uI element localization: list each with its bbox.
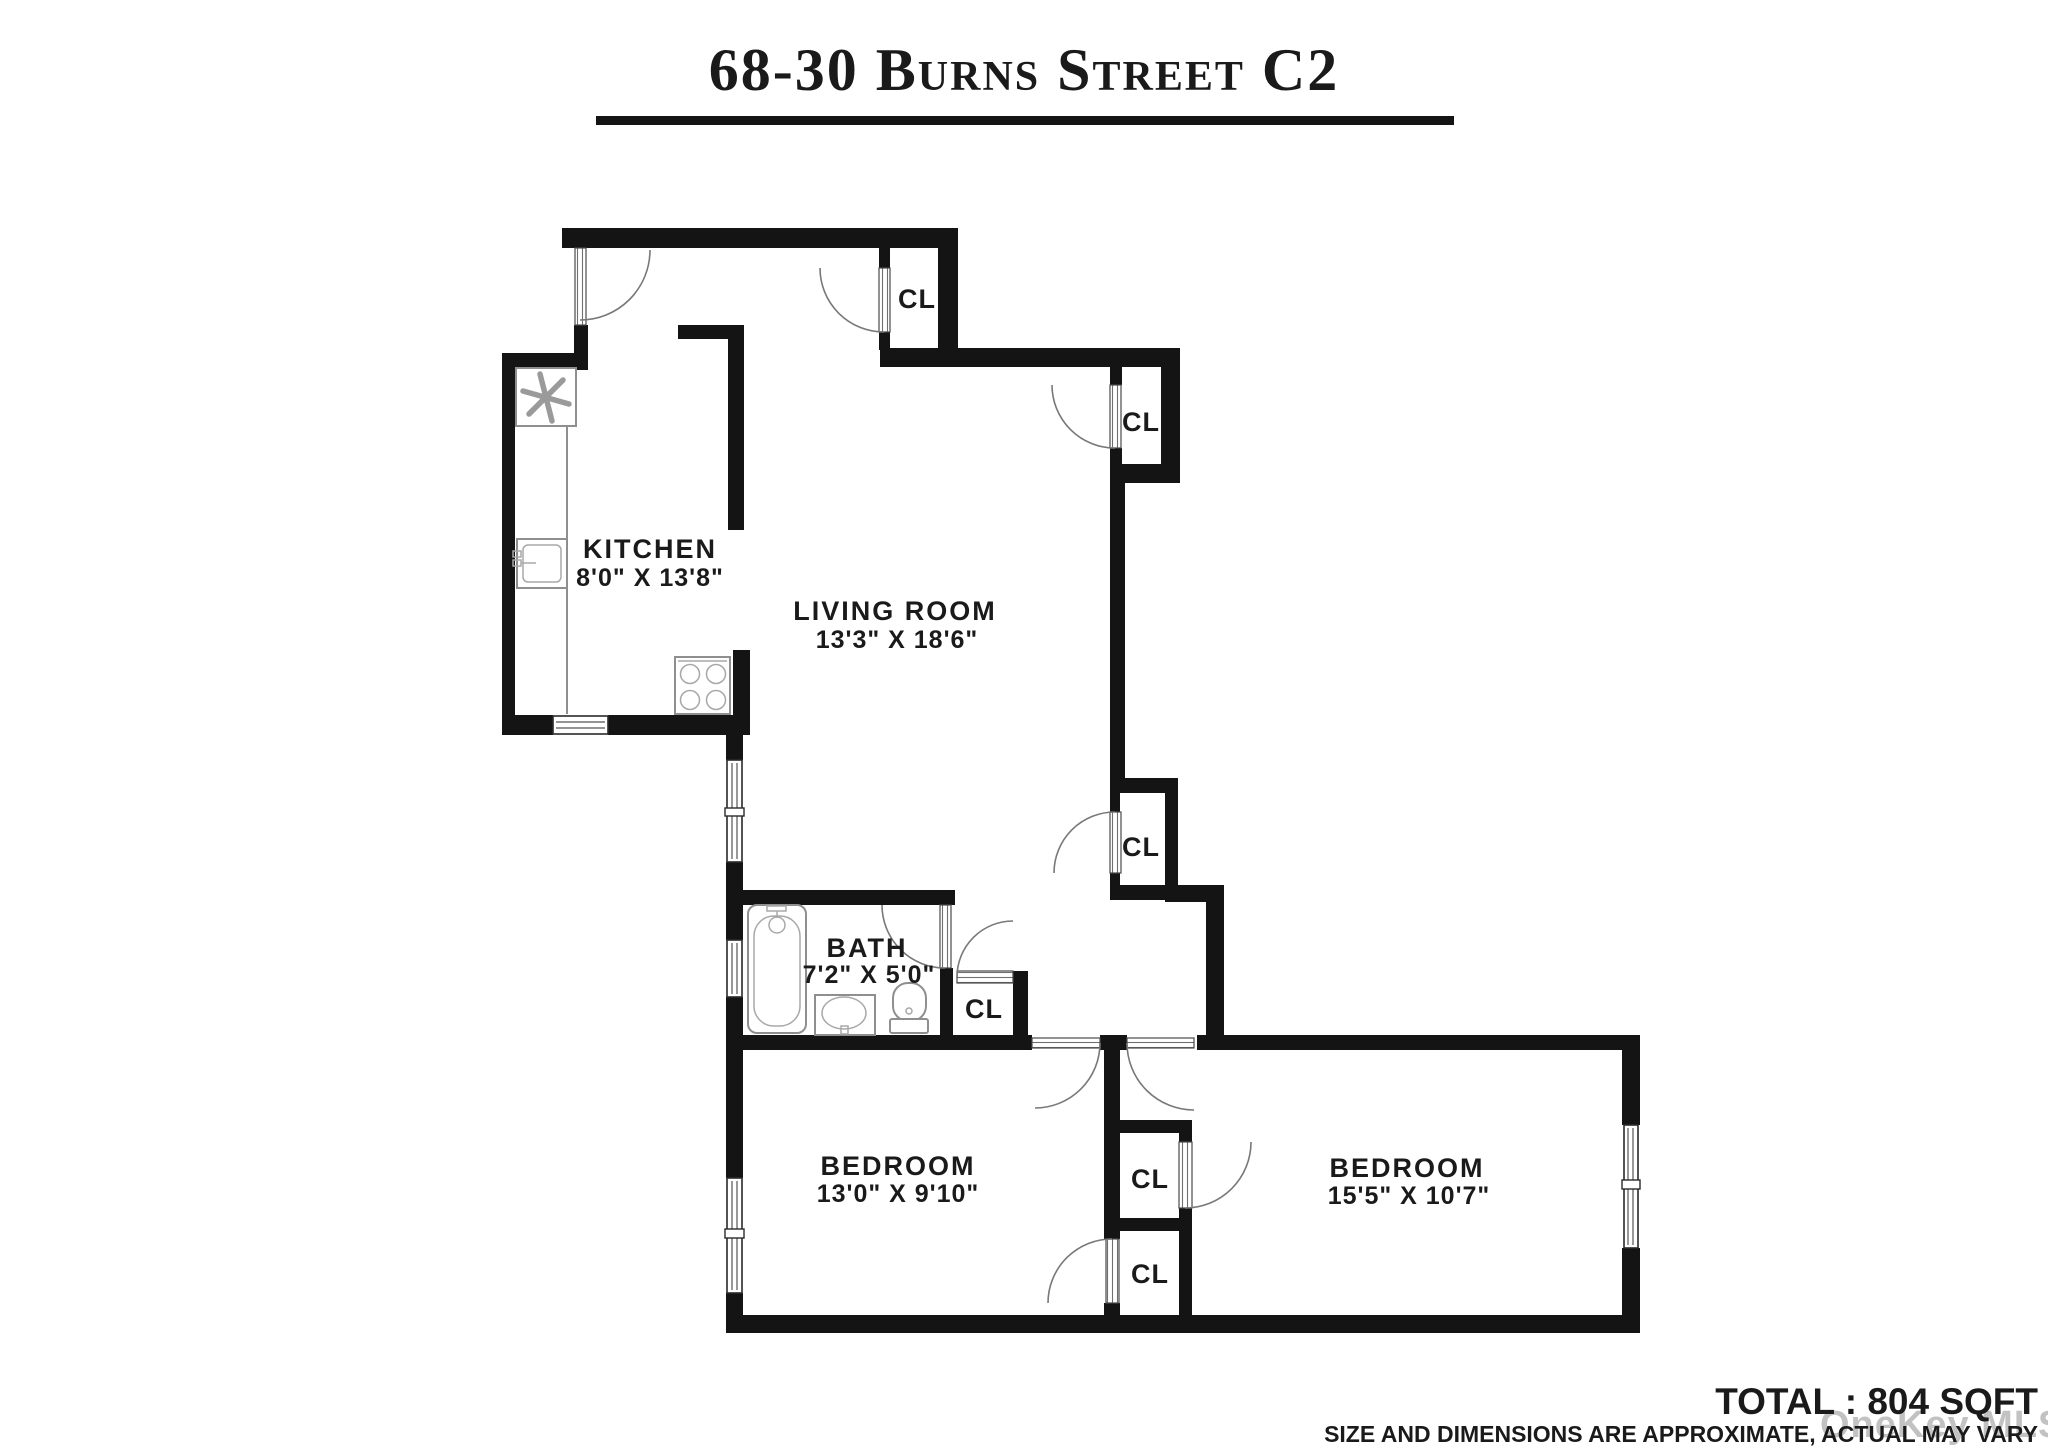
dining-window xyxy=(725,760,744,862)
closet3-label: CL xyxy=(1122,832,1160,862)
closet5-label: CL xyxy=(1131,1164,1169,1194)
closet2-label: CL xyxy=(1122,407,1160,437)
floor-plan-page: 68-30 Burns Street C2 xyxy=(0,0,2048,1448)
kitchen-window xyxy=(553,716,608,734)
stove-icon xyxy=(675,657,730,714)
page-title: 68-30 Burns Street C2 xyxy=(709,37,1339,103)
bath-sink-icon xyxy=(815,995,875,1035)
kitchen-sink-icon xyxy=(513,539,567,588)
refrigerator-icon xyxy=(516,368,576,426)
closet4-label: CL xyxy=(965,994,1003,1024)
bath-window xyxy=(727,940,742,997)
kitchen-dimensions: 8'0" X 13'8" xyxy=(576,564,724,592)
bath-label: BATH xyxy=(827,933,908,963)
bath-dimensions: 7'2" X 5'0" xyxy=(803,961,936,989)
bedroom1-dimensions: 13'0" X 9'10" xyxy=(817,1180,980,1208)
toilet-icon xyxy=(890,983,928,1033)
closet6-label: CL xyxy=(1131,1259,1169,1289)
bedroom2-window xyxy=(1622,1125,1640,1248)
bedroom1-label: BEDROOM xyxy=(821,1151,976,1181)
bedroom2-label: BEDROOM xyxy=(1330,1153,1485,1183)
closet1-label: CL xyxy=(898,284,936,314)
title-underline xyxy=(596,116,1454,125)
disclaimer-label: SIZE AND DIMENSIONS ARE APPROXIMATE, ACT… xyxy=(1324,1421,2038,1447)
bathtub-icon xyxy=(748,905,806,1033)
total-area-label: TOTAL : 804 SQFT xyxy=(1715,1381,2038,1422)
page-background xyxy=(0,0,2048,1448)
bedroom2-dimensions: 15'5" X 10'7" xyxy=(1328,1182,1491,1210)
bedroom1-window xyxy=(725,1178,744,1293)
living-room-label: LIVING ROOM xyxy=(793,596,997,626)
floor-plan-svg: 68-30 Burns Street C2 xyxy=(0,0,2048,1448)
living-room-dimensions: 13'3" X 18'6" xyxy=(816,626,979,654)
kitchen-label: KITCHEN xyxy=(583,534,717,564)
